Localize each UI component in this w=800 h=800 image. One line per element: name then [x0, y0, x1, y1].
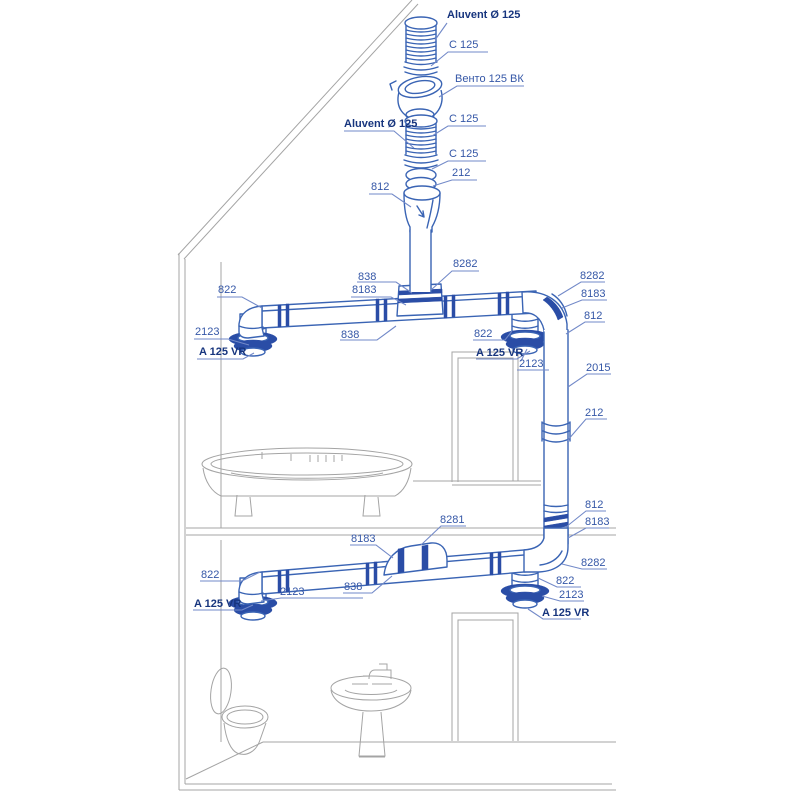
callout-212-attic: 212	[452, 168, 470, 179]
attic-elbow	[404, 186, 440, 232]
callout-2015-riser: 2015	[586, 363, 610, 374]
callout-812-attic-elbow: 812	[371, 182, 389, 193]
callout-a125vr-upper-right: A 125 VR	[476, 348, 523, 359]
sink	[331, 664, 411, 757]
corrugated-pipe-roof	[404, 17, 438, 75]
callout-2123-lower-right: 2123	[559, 590, 583, 601]
callout-822-lower-left: 822	[201, 570, 219, 581]
callout-aluvent-attic: Aluvent Ø 125	[344, 119, 417, 130]
callout-vento-cap: Венто 125 ВК	[455, 74, 524, 85]
callout-8183-riser-top: 8183	[581, 289, 605, 300]
callout-838-upper-bottom: 838	[341, 330, 359, 341]
callout-822-upper-right: 822	[474, 329, 492, 340]
callout-c125-roof: C 125	[449, 40, 478, 51]
callout-a125vr-lower-left: A 125 VR	[194, 599, 241, 610]
callout-2123-upper-left: 2123	[195, 327, 219, 338]
callout-c125-attic-1: C 125	[449, 114, 478, 125]
callout-a125vr-upper-left: A 125 VR	[199, 347, 246, 358]
callout-8183-upper-tee: 8183	[352, 285, 376, 296]
duct-system	[229, 17, 570, 620]
callout-8282-upper-tee: 8282	[453, 259, 477, 270]
diagram-canvas: Aluvent Ø 125 C 125 Венто 125 ВК Aluvent…	[0, 0, 800, 800]
callout-8282-riser-bottom: 8282	[581, 558, 605, 569]
callout-aluvent-roof: Aluvent Ø 125	[447, 10, 520, 21]
callout-8281-lower-tee: 8281	[440, 515, 464, 526]
callout-822-upper-left: 822	[218, 285, 236, 296]
callout-8183-lower-tee: 8183	[351, 534, 375, 545]
callout-812-riser-top: 812	[584, 311, 602, 322]
roof-cap	[390, 73, 443, 121]
callout-8282-riser-top: 8282	[580, 271, 604, 282]
callout-c125-attic-2: C 125	[449, 149, 478, 160]
callout-212-riser: 212	[585, 408, 603, 419]
callout-8183-riser-bottom: 8183	[585, 517, 609, 528]
callout-838-lower: 838	[344, 582, 362, 593]
callout-2123-lower-left: 2123	[280, 587, 304, 598]
riser-duct	[542, 330, 570, 548]
callout-2123-upper-right: 2123	[519, 359, 543, 370]
toilet	[208, 667, 268, 755]
callout-a125vr-lower-right: A 125 VR	[542, 608, 589, 619]
bathtub	[202, 448, 412, 516]
callout-838-upper-tee-top: 838	[358, 272, 376, 283]
callout-812-riser-bottom: 812	[585, 500, 603, 511]
callout-822-lower-right: 822	[556, 576, 574, 587]
